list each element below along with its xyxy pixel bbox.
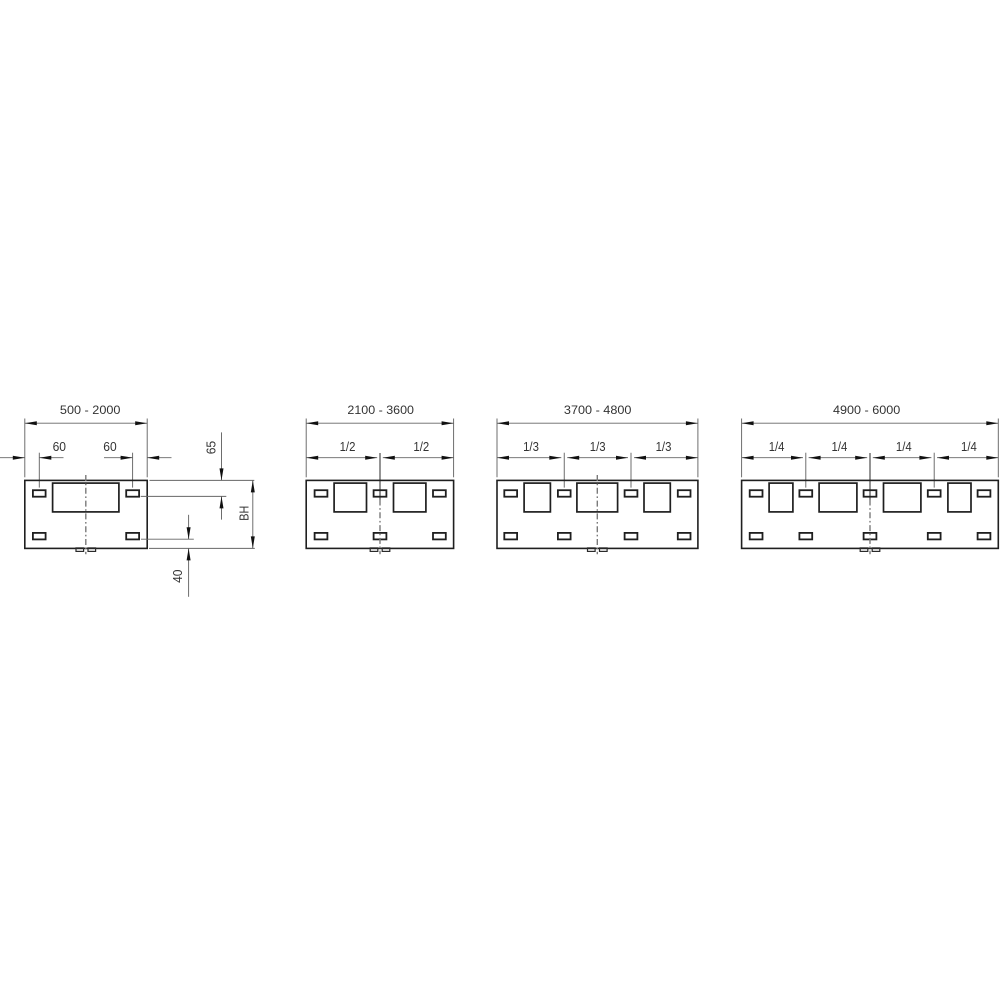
svg-text:1/4: 1/4 bbox=[832, 440, 848, 454]
svg-text:60: 60 bbox=[53, 440, 66, 454]
svg-text:BH: BH bbox=[238, 506, 252, 521]
svg-text:1/3: 1/3 bbox=[590, 440, 606, 454]
svg-text:4900 - 6000: 4900 - 6000 bbox=[833, 403, 900, 417]
svg-text:500 - 2000: 500 - 2000 bbox=[60, 403, 121, 417]
svg-text:1/4: 1/4 bbox=[896, 440, 912, 454]
svg-text:1/2: 1/2 bbox=[340, 440, 356, 454]
svg-text:60: 60 bbox=[103, 440, 116, 454]
svg-text:1/3: 1/3 bbox=[656, 440, 672, 454]
svg-text:1/3: 1/3 bbox=[523, 440, 539, 454]
svg-text:40: 40 bbox=[171, 570, 185, 583]
svg-text:1/2: 1/2 bbox=[413, 440, 429, 454]
svg-text:1/4: 1/4 bbox=[961, 440, 977, 454]
svg-text:65: 65 bbox=[204, 441, 218, 454]
svg-text:3700 - 4800: 3700 - 4800 bbox=[564, 403, 632, 417]
svg-text:1/4: 1/4 bbox=[769, 440, 785, 454]
svg-text:2100 - 3600: 2100 - 3600 bbox=[347, 403, 414, 417]
